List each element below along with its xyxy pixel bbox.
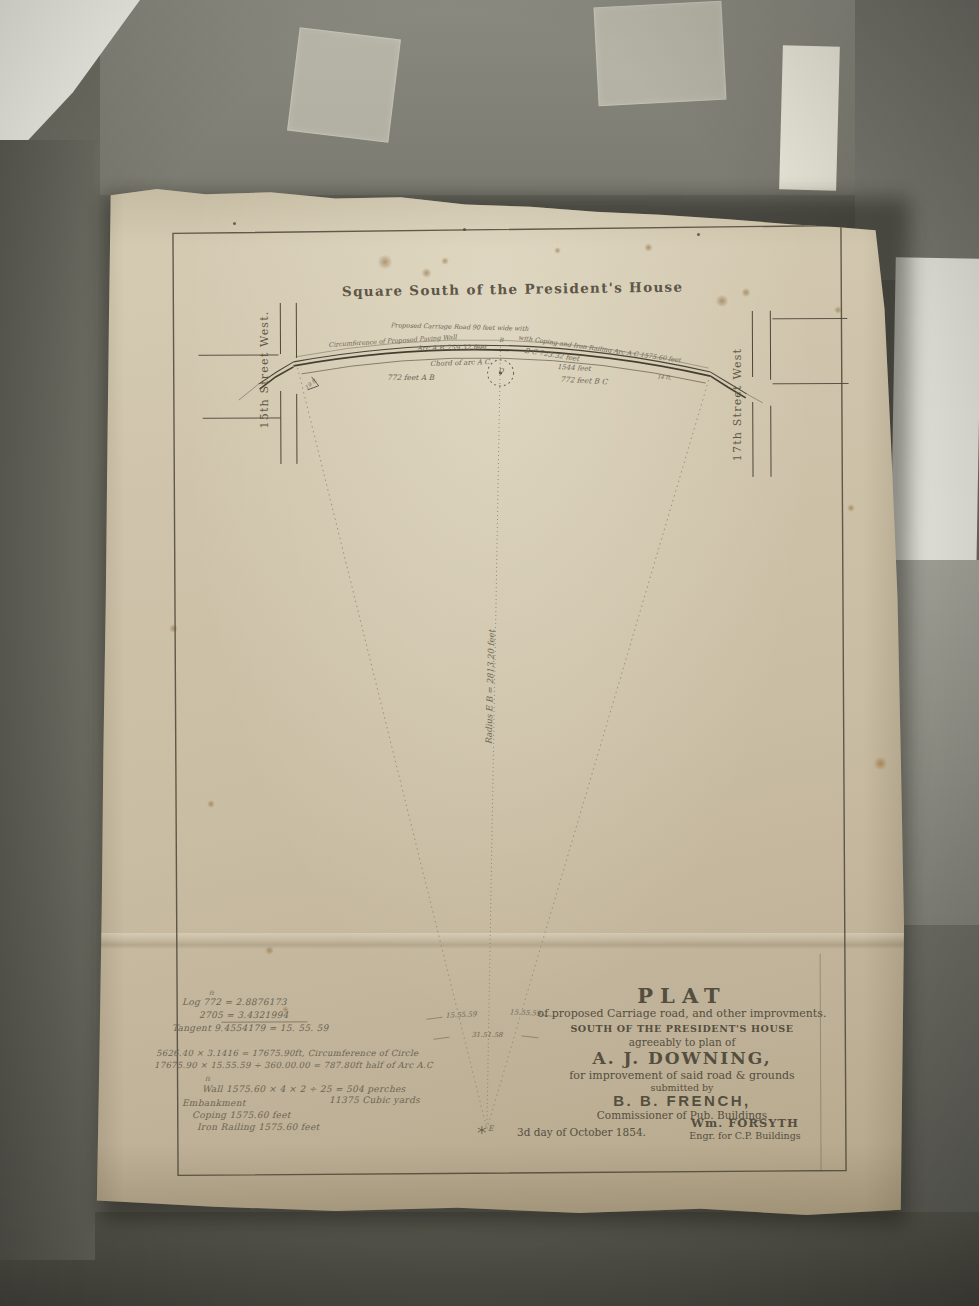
sup-ft-2: ft (205, 1075, 210, 1082)
calc-circumference: 5626.40 × 3.1416 = 17675.90ft, Circumfer… (156, 1048, 418, 1058)
calc-embankment: Embankment (182, 1098, 246, 1108)
title-block-line7: Engr. for C.P. Buildings (645, 1130, 845, 1141)
title-block-line1: of proposed Carriage road, and other imp… (517, 1007, 847, 1020)
calc-wall: Wall 1575.60 × 4 × 2 ÷ 25 = 504 perches (202, 1084, 406, 1094)
title-block-name-downing: A. J. DOWNING, (532, 1048, 832, 1068)
point-e-label: E (488, 1124, 493, 1133)
plat-document: Square South of the President's House 15… (92, 185, 904, 1215)
chord-length-label: 1544 feet (557, 363, 591, 373)
title-block-line3: agreeably to plan of (532, 1036, 832, 1048)
title-block-name-forsyth: Wm. FORSYTH (645, 1116, 845, 1130)
calc-log2: 2705 = 3.4321994 (199, 1010, 289, 1020)
point-b-label: B (499, 336, 503, 343)
title-block-line4: for improvement of said road & grounds (532, 1069, 832, 1082)
title-block-heading: PLAT (532, 983, 832, 1008)
calc-half-arc: 17675.90 × 15.55.59 ÷ 360.00.00 = 787.80… (154, 1060, 433, 1070)
title-block-date: 3d day of October 1854. (517, 1126, 646, 1138)
street-right-lines (752, 311, 771, 477)
title-block-name-french: B. B. FRENCH, (532, 1092, 832, 1109)
small-dim-right: 14 ft. (657, 373, 672, 380)
street-label-15th: 15th Street West. (258, 303, 271, 437)
calc-coping: Coping 1575.60 feet (192, 1110, 291, 1120)
road-tail-right-ext (747, 394, 763, 403)
calc-log1: Log 772 = 2.8876173 (182, 997, 287, 1007)
road-tail-left-ext (239, 384, 259, 400)
half-chord-ab-label: 772 feet A B (387, 373, 434, 382)
point-d-label: D (498, 367, 504, 375)
angle-total: 31.51.58 (447, 1031, 527, 1039)
calc-iron-railing: Iron Railing 1575.60 feet (197, 1122, 320, 1132)
calc-log3: Tangent 9.4554179 = 15. 55. 59 (172, 1023, 329, 1033)
sup-ft-1: ft (209, 989, 214, 996)
arc-ab-label: Arc A B 759.32 feet (417, 343, 487, 352)
point-e-mark (478, 1126, 486, 1134)
photo-stage: Square South of the President's House 15… (0, 0, 979, 1306)
title-block-line2: SOUTH OF THE PRESIDENT'S HOUSE (532, 1023, 832, 1034)
street-left-lines (280, 303, 297, 464)
street-right-stubs (772, 318, 848, 383)
calc-embankment-value: 11375 Cubic yards (329, 1095, 420, 1105)
street-label-17th: 17th Street West (731, 338, 744, 472)
